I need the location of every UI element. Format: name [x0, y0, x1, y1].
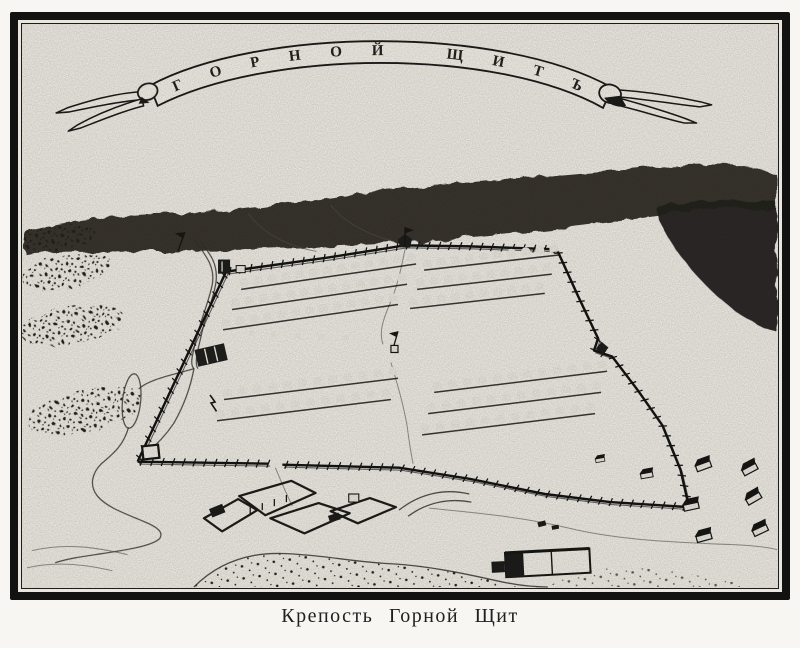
figure-caption: Крепость Горной Щит: [0, 605, 800, 628]
paper-grain: [22, 24, 778, 588]
engraving-frame: ГОРНОЙ ЩИТЪ: [10, 12, 790, 600]
fortress-map-engraving: ГОРНОЙ ЩИТЪ: [22, 24, 778, 588]
frame-inner-line: ГОРНОЙ ЩИТЪ: [21, 23, 779, 589]
frame-gap: ГОРНОЙ ЩИТЪ: [18, 20, 782, 592]
